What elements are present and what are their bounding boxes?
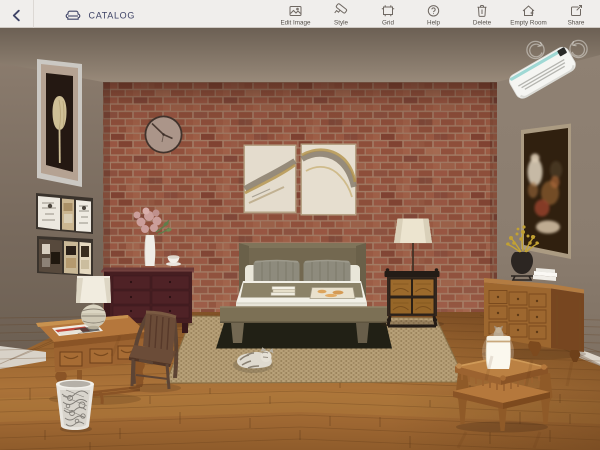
svg-text:CATALOG: CATALOG bbox=[89, 11, 136, 21]
svg-text:Help: Help bbox=[427, 20, 440, 27]
svg-text:Style: Style bbox=[334, 20, 348, 27]
svg-text:Grid: Grid bbox=[382, 20, 394, 27]
svg-text:Empty Room: Empty Room bbox=[510, 20, 546, 27]
svg-text:Share: Share bbox=[568, 20, 585, 27]
svg-text:Delete: Delete bbox=[473, 20, 492, 27]
svg-text:Edit Image: Edit Image bbox=[280, 20, 311, 27]
